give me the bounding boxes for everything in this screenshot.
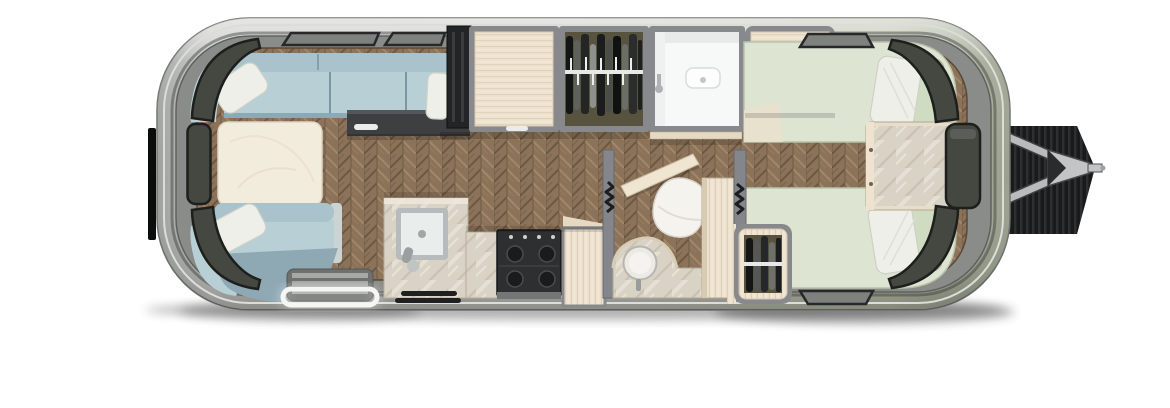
shadow-above-sink-block (384, 192, 468, 198)
refrigerator (447, 26, 471, 128)
window-bottom-1 (800, 291, 873, 304)
credenza-handle (354, 124, 378, 130)
tongue-bar (1088, 164, 1102, 172)
bath-partition-edge (702, 178, 707, 298)
sofa-long-backrest (228, 53, 454, 72)
hitch-tongue (1006, 126, 1106, 234)
nightstand-front (866, 122, 874, 210)
vanity-sink-basin (629, 252, 651, 274)
vanity-faucet (636, 279, 641, 291)
shower-drain (700, 77, 706, 83)
shower-head (655, 85, 663, 93)
sink-drain (418, 230, 426, 238)
shower-threshold (650, 132, 742, 139)
floorplan-canvas (0, 0, 1170, 408)
tongue-tip (1101, 166, 1106, 171)
window-top-2 (385, 33, 445, 45)
sink-counter-edge (384, 198, 468, 204)
side-cabinet (563, 228, 605, 306)
shadow-above-counter (466, 226, 603, 232)
closet-rod-lower (744, 262, 782, 266)
floorplan-image (0, 0, 1170, 408)
grab-handle-1 (401, 291, 457, 296)
refrigerator-slit-1 (452, 32, 455, 122)
nightstand-marble-top (874, 126, 952, 206)
shadow-under-credenza (347, 134, 470, 140)
window-top-3 (800, 34, 873, 47)
window-rear-center (188, 124, 211, 204)
overhead-cabinet-panel (475, 32, 553, 126)
cabinet-handle (506, 126, 528, 131)
nightstand-handle-2 (869, 182, 873, 186)
shadow-shower-threshold (650, 139, 742, 145)
refrigerator-slit-2 (461, 32, 464, 122)
stove-front-edge (497, 292, 561, 299)
rear-bumper (148, 128, 156, 240)
dinette-table (218, 122, 322, 206)
bath-wall-left (603, 150, 614, 298)
window-top-1 (283, 33, 379, 45)
shower-wall-shade-top (655, 32, 739, 43)
faucet-base (407, 260, 419, 272)
grab-handle-2 (395, 298, 461, 303)
window-front-reflection (950, 129, 976, 139)
nightstand-handle-1 (869, 148, 873, 152)
shadow-under-bedhead-cabinet (745, 113, 835, 118)
